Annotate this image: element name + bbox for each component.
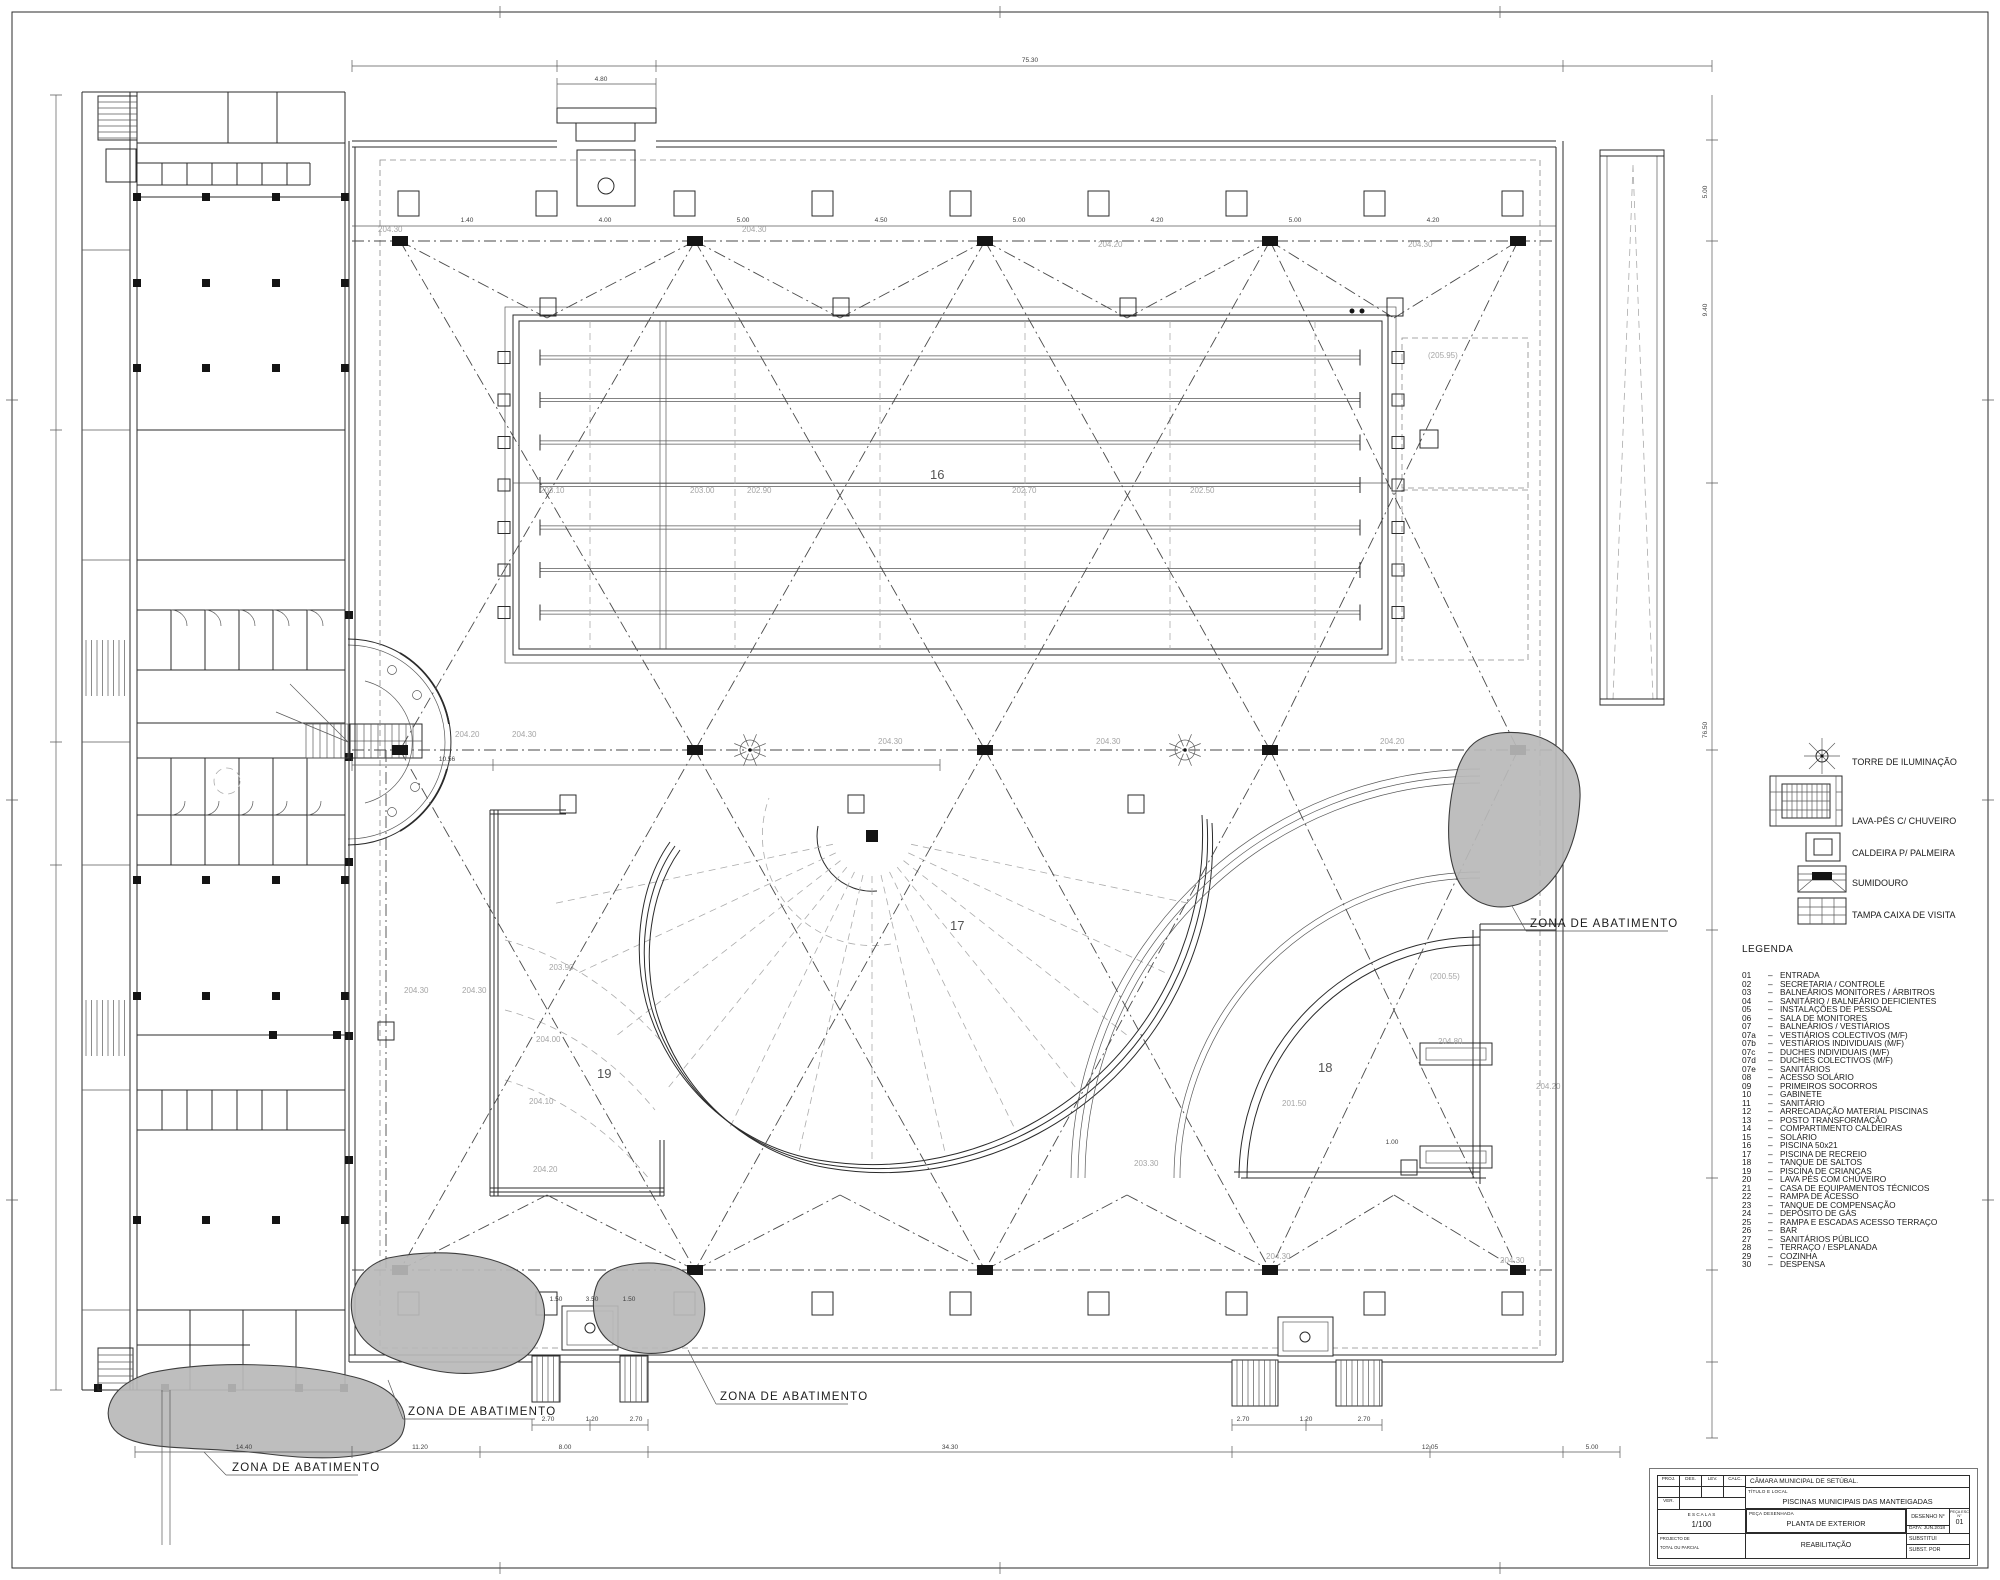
pool-number-label: 19 <box>597 1066 611 1081</box>
sig-empty <box>1680 1487 1702 1498</box>
dimension-label: 5.00 <box>1702 185 1709 198</box>
pool-number-label: 16 <box>930 467 944 482</box>
sheet-no-cell: PEÇA ESC N° 01 <box>1949 1509 1969 1533</box>
elevation-label: 204.30 <box>878 737 903 746</box>
symbol-label: TAMPA CAIXA DE VISITA <box>1852 910 1956 920</box>
dimension-label: 76.50 <box>1702 721 1709 738</box>
dimension-label: 1.50 <box>550 1296 563 1303</box>
left-label-1: PROJECTO DE <box>1658 1534 1745 1541</box>
piece-label: PEÇA DESENHADA <box>1749 1511 1794 1516</box>
elevation-label: 203.90 <box>549 963 574 972</box>
elevation-label: 203.10 <box>540 486 565 495</box>
dimension-label: 12.05 <box>1422 1444 1439 1451</box>
title-label: TÍTULO E LOCAL <box>1748 1489 1788 1494</box>
dimension-label: 8.00 <box>559 1444 572 1451</box>
dimension-label: 4.00 <box>599 217 612 224</box>
scale-value: 1/100 <box>1658 1520 1745 1529</box>
dimension-label: 1.20 <box>586 1416 599 1423</box>
dimension-label: 5.00 <box>1013 217 1026 224</box>
elevation-label: 204.20 <box>1380 737 1405 746</box>
subst-por-label: SUBST. POR <box>1906 1545 1969 1558</box>
legend-list: 01–ENTRADA02–SECRETARIA / CONTROLE03–BAL… <box>1742 971 1990 1269</box>
elevation-label: 204.30 <box>1408 240 1433 249</box>
left-label-2: TOTAL OU PARCIAL <box>1658 1541 1745 1550</box>
legend-title: LEGENDA <box>1742 944 1990 955</box>
dimension-label: 14.40 <box>236 1444 253 1451</box>
symbol-label: SUMIDOURO <box>1852 878 1908 888</box>
dimension-label: 5.00 <box>1586 1444 1599 1451</box>
elevation-label: 204.30 <box>1500 1256 1525 1265</box>
elevation-label: 204.00 <box>536 1035 561 1044</box>
elevation-label: 204.30 <box>1266 1252 1291 1261</box>
elevation-label: 204.20 <box>1098 240 1123 249</box>
dimension-label: 2.70 <box>630 1416 643 1423</box>
sheet-no-label: PEÇA ESC N° <box>1950 1510 1969 1518</box>
dimension-label: 2.70 <box>1237 1416 1250 1423</box>
elevation-label: 204.30 <box>512 730 537 739</box>
elevation-label: 202.50 <box>1190 486 1215 495</box>
existing-building <box>82 92 422 1392</box>
expansion-joints <box>352 241 1556 1270</box>
access-ramp <box>1600 150 1664 705</box>
dimension-label: 5.00 <box>1289 217 1302 224</box>
subsidence-zone-mid2 <box>593 1263 704 1353</box>
sig-empty <box>1702 1487 1724 1498</box>
elevation-label: 203.30 <box>1134 1159 1159 1168</box>
project-title: PISCINAS MUNICIPAIS DAS MANTEIGADAS <box>1746 1497 1969 1506</box>
dimension-label: 75.30 <box>1022 57 1039 64</box>
symbol-label: CALDEIRA P/ PALMEIRA <box>1852 848 1955 858</box>
symbol-label: TORRE DE ILUMINAÇÃO <box>1852 757 1957 767</box>
col-calc: CALC. <box>1724 1476 1746 1487</box>
col-lev: LEV. <box>1702 1476 1724 1487</box>
date-label: DATA: <box>1909 1526 1922 1531</box>
dimension-label: 9.40 <box>1702 303 1709 316</box>
subsidence-zone-right <box>1449 732 1580 907</box>
dimension-label: 1.50 <box>623 1296 636 1303</box>
date-cell: DATA: JUN.2018 <box>1906 1526 1949 1533</box>
scale-cell: E S C A L A S 1/100 <box>1658 1509 1746 1533</box>
scale-label: E S C A L A S <box>1658 1512 1745 1517</box>
drawing-no-label: DESENHO N° <box>1906 1509 1949 1526</box>
room-legend: LEGENDA 01–ENTRADA02–SECRETARIA / CONTRO… <box>1742 944 1990 1269</box>
elevation-label: 202.70 <box>1012 486 1037 495</box>
sig-empty <box>1658 1487 1680 1498</box>
elevation-label: 202.90 <box>747 486 772 495</box>
org-name: CÂMARA MUNICIPAL DE SETÚBAL. <box>1746 1476 1969 1488</box>
pool-50x21 <box>498 307 1404 663</box>
manhole-cover-icon <box>1798 898 1846 924</box>
zone-label: ZONA DE ABATIMENTO <box>408 1406 556 1418</box>
diving-platforms <box>1420 1043 1492 1168</box>
project-title-cell: TÍTULO E LOCAL PISCINAS MUNICIPAIS DAS M… <box>1746 1488 1969 1509</box>
substitui-label: SUBSTITUI <box>1906 1533 1969 1545</box>
elevation-label: 204.30 <box>742 225 767 234</box>
palm-planter-icon <box>1806 833 1840 861</box>
elevation-label: 204.30 <box>404 986 429 995</box>
compensation-tank-zone <box>1402 338 1528 660</box>
footbath-icon <box>1770 776 1842 826</box>
dimension-label: 1.00 <box>1386 1139 1399 1146</box>
col-des: DES. <box>1680 1476 1702 1487</box>
col-proj: PROJ. <box>1658 1476 1680 1487</box>
zone-label: ZONA DE ABATIMENTO <box>232 1462 380 1474</box>
zone-label: ZONA DE ABATIMENTO <box>1530 918 1678 930</box>
dimension-label: 2.70 <box>542 1416 555 1423</box>
elevation-label: 204.80 <box>1438 1037 1463 1046</box>
dimension-label: 4.20 <box>1151 217 1164 224</box>
dimension-label: 1.40 <box>461 217 474 224</box>
childrens-pool <box>490 810 664 1196</box>
phase-value: REABILITAÇÃO <box>1746 1542 1906 1549</box>
recreation-pool <box>551 798 1212 1173</box>
elevation-label: 204.10 <box>529 1097 554 1106</box>
title-block: PROJ. DES. LEV. CALC. VER. CÂMARA MUNICI… <box>1657 1475 1970 1559</box>
signature-table: PROJ. DES. LEV. CALC. VER. <box>1658 1476 1746 1509</box>
dimension-label: 34.30 <box>942 1444 959 1451</box>
phase-cell: REABILITAÇÃO <box>1746 1533 1906 1558</box>
pool-number-label: 18 <box>1318 1060 1332 1075</box>
sheet-no-value: 01 <box>1950 1519 1969 1526</box>
dimension-label: 4.80 <box>595 76 608 83</box>
elevation-label: (205.95) <box>1428 351 1458 360</box>
dimension-label: 5.00 <box>737 217 750 224</box>
elevation-label: 204.20 <box>455 730 480 739</box>
deck-skylights <box>378 191 1523 1315</box>
elevation-label: 204.30 <box>378 225 403 234</box>
dimension-label: 11.20 <box>412 1444 428 1451</box>
subsidence-zones <box>108 732 1668 1475</box>
dimension-label: 10.56 <box>439 756 456 763</box>
piece-value: PLANTA DE EXTERIOR <box>1747 1519 1905 1528</box>
symbol-label: LAVA-PÉS C/ CHUVEIRO <box>1852 816 1956 826</box>
dimension-label: 3.50 <box>586 1296 599 1303</box>
subsidence-zone-left <box>108 1365 405 1458</box>
pool-number-label: 17 <box>950 918 964 933</box>
elevation-label: 204.30 <box>462 986 487 995</box>
project-type-cell: PROJECTO DE TOTAL OU PARCIAL <box>1658 1533 1746 1558</box>
sig-empty <box>1724 1487 1746 1498</box>
dimension-label: 2.70 <box>1358 1416 1371 1423</box>
dimension-label: 4.50 <box>875 217 888 224</box>
diving-tank <box>1071 769 1492 1184</box>
dimension-label: 4.20 <box>1427 217 1440 224</box>
floor-plan-canvas: ZONA DE ABATIMENTOZONA DE ABATIMENTOZONA… <box>0 0 2000 1580</box>
legend-item: 30–DESPENSA <box>1742 1260 1990 1269</box>
elevation-label: 201.50 <box>1282 1099 1307 1108</box>
drain-icon <box>1798 866 1846 892</box>
elevation-label: 203.00 <box>690 486 715 495</box>
elevation-label: (200.55) <box>1430 972 1460 981</box>
drawing-sheet: ZONA DE ABATIMENTOZONA DE ABATIMENTOZONA… <box>0 0 2000 1580</box>
elevation-label: 204.20 <box>1536 1082 1561 1091</box>
zone-label: ZONA DE ABATIMENTO <box>720 1391 868 1403</box>
col-ver: VER. <box>1658 1498 1680 1509</box>
elevation-label: 204.20 <box>533 1165 558 1174</box>
symbols-legend: TORRE DE ILUMINAÇÃO LAVA-PÉS C/ CHUVEIRO… <box>1770 738 1957 924</box>
dimension-label: 1.20 <box>1300 1416 1313 1423</box>
elevation-label: 204.30 <box>1096 737 1121 746</box>
light-tower-icon <box>1804 738 1840 774</box>
joint-nodes <box>392 236 1526 1275</box>
piece-cell: PEÇA DESENHADA PLANTA DE EXTERIOR <box>1746 1509 1906 1533</box>
date-value: JUN.2018 <box>1924 1526 1945 1531</box>
